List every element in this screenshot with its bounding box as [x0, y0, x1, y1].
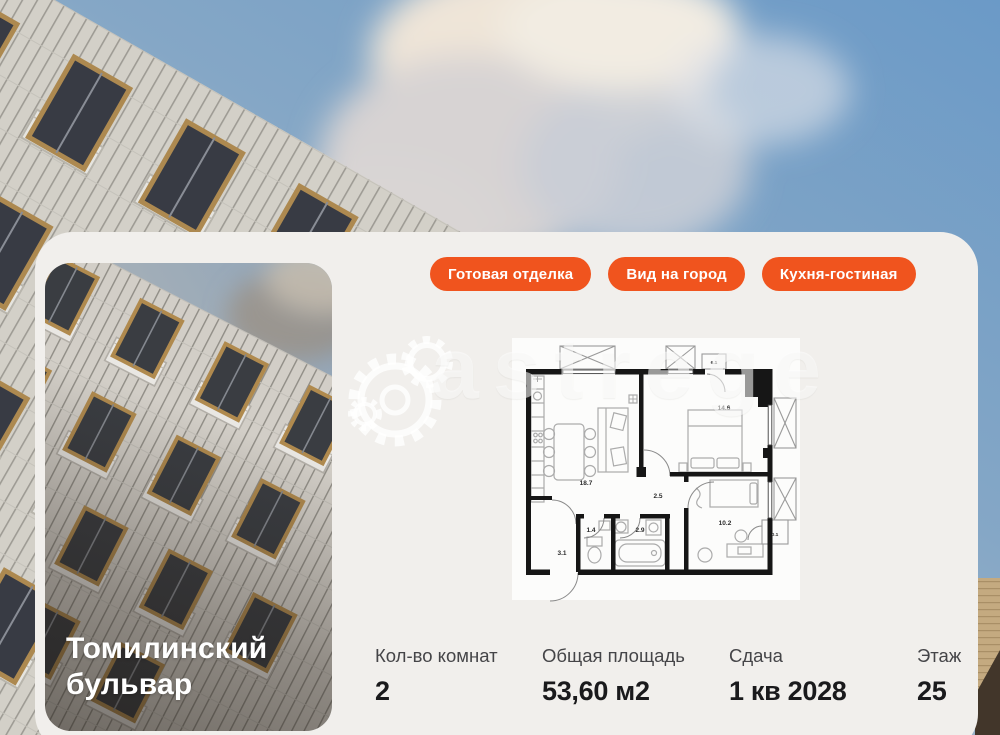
stat-value: 25 [917, 676, 961, 707]
room-area-bath: 2.9 [635, 527, 644, 534]
room-area-bedroom2: 10.2 [719, 520, 732, 527]
stat-label: Общая площадь [542, 645, 729, 667]
stat-value: 53,60 м2 [542, 676, 729, 707]
badge-kitchen[interactable]: Кухня-гостиная [762, 257, 916, 291]
stats-row: Кол-во комнат 2 Общая площадь 53,60 м2 С… [35, 645, 978, 707]
stat-label: Этаж [917, 645, 961, 667]
stat-label: Сдача [729, 645, 917, 667]
room-area-hall: 2.5 [653, 493, 662, 500]
stat-floor: Этаж 25 [917, 645, 961, 707]
room-area-kitchen: 18.7 [580, 480, 593, 487]
floor-plan: 18.7 14.6 2.5 1.4 2.9 3.1 10.2 0.1 6.1 [500, 330, 800, 610]
screenshot-root: astrege [0, 0, 1000, 735]
stat-label: Кол-во комнат [375, 645, 542, 667]
stat-delivery: Сдача 1 кв 2028 [729, 645, 917, 707]
listing-card: astrege [35, 232, 978, 735]
room-area-niche: 0.1 [772, 532, 779, 538]
badge-finish[interactable]: Готовая отделка [430, 257, 591, 291]
stat-area: Общая площадь 53,60 м2 [542, 645, 729, 707]
stat-value: 1 кв 2028 [729, 676, 917, 707]
neighbor-building [975, 578, 1000, 735]
room-area-bedroom: 14.6 [718, 405, 731, 412]
gear-icon [323, 322, 453, 492]
feature-badges: Готовая отделка Вид на город Кухня-гости… [430, 257, 916, 291]
stat-value: 2 [375, 676, 542, 707]
room-area-balcony: 6.1 [711, 360, 718, 366]
badge-view[interactable]: Вид на город [608, 257, 745, 291]
room-area-corridor: 3.1 [557, 550, 566, 557]
room-area-wc: 1.4 [586, 527, 595, 534]
stat-rooms: Кол-во комнат 2 [375, 645, 542, 707]
